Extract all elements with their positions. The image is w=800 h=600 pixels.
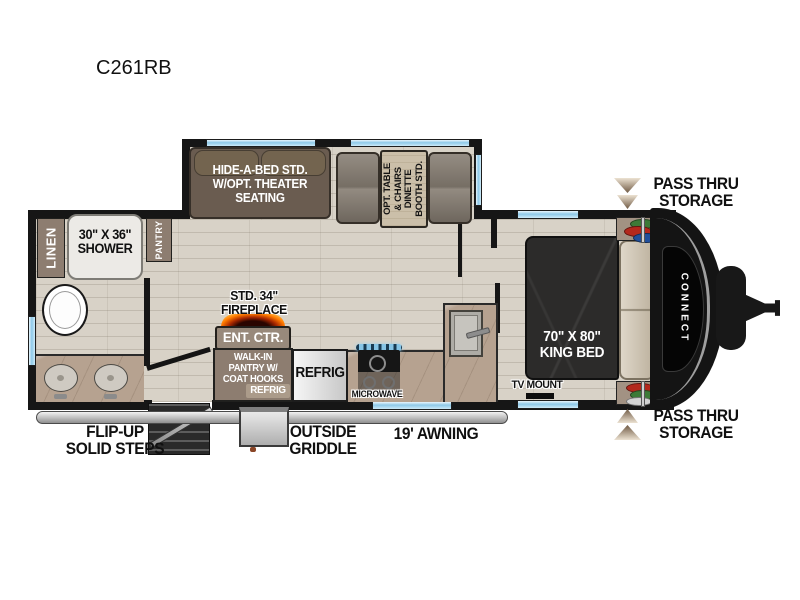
living-partition-stub — [458, 215, 462, 277]
tv-mount-bar — [526, 393, 554, 399]
vanity-faucet-left-icon — [54, 394, 67, 399]
outside-griddle-label: OUTSIDE GRIDDLE — [279, 424, 367, 459]
vanity-sink-right-drain — [107, 375, 114, 381]
bathroom-partition-wall — [144, 278, 150, 366]
stove-burner-2 — [363, 376, 376, 389]
window-slideout-side — [475, 154, 482, 206]
vanity-faucet-right-icon — [104, 394, 117, 399]
pass-thru-bottom-line2: STORAGE — [647, 425, 745, 442]
walk-in-pantry-label: WALK-IN PANTRY W/ COAT HOOKS — [216, 352, 289, 385]
dinette-bench-left — [336, 152, 380, 224]
decor-pin-bottom-icon — [641, 381, 645, 407]
pass-thru-top-line2: STORAGE — [647, 193, 745, 210]
king-bed-label: 70" X 80" KING BED — [530, 330, 615, 362]
window-kitchen-bottom — [372, 401, 452, 410]
decor-disc-silver-bottom-icon — [626, 397, 652, 406]
refrig-label: REFRIG — [294, 366, 347, 381]
window-bedroom-top — [517, 210, 579, 219]
pass-thru-bottom-line1: PASS THRU — [647, 408, 745, 425]
sofa-label-line3: SEATING — [195, 192, 325, 206]
window-bedroom-bottom — [517, 400, 579, 409]
dinette-label-line4: BOOTH STD. — [415, 151, 426, 227]
shower-label: 30" X 36" SHOWER — [71, 228, 139, 257]
flip-up-steps-line1: FLIP-UP — [45, 424, 186, 441]
tv-mount-label: TV MOUNT — [508, 380, 566, 392]
toilet-seat — [49, 291, 81, 329]
pass-thru-top-arrow-icon-1 — [614, 178, 641, 193]
fireplace-label: STD. 34" FIREPLACE — [207, 289, 301, 317]
bedroom-partition-top — [491, 218, 497, 248]
pass-thru-top-line1: PASS THRU — [647, 176, 745, 193]
flip-up-steps-line2: SOLID STEPS — [45, 441, 186, 458]
sofa-label-line2: W/OPT. THEATER — [195, 178, 325, 192]
king-bed-label-line1: 70" X 80" — [530, 330, 615, 346]
decor-pin-top-icon — [641, 217, 645, 243]
propane-cover — [716, 266, 746, 350]
ent-ctr-label: ENT. CTR. — [218, 330, 288, 345]
pass-thru-bottom-label: PASS THRU STORAGE — [647, 408, 745, 443]
awning-label: 19' AWNING — [383, 426, 488, 443]
stove-burner-1 — [369, 355, 386, 372]
model-title: C261RB — [96, 57, 172, 80]
window-rear — [28, 316, 36, 366]
dinette-bench-right — [428, 152, 472, 224]
window-slideout-2 — [350, 139, 470, 147]
walk-in-refrig-label: REFRIG — [247, 385, 288, 397]
pass-thru-bottom-arrow-icon-1 — [617, 409, 638, 423]
linen-label: LINEN — [44, 227, 59, 269]
pass-thru-top-arrow-icon-2 — [617, 195, 638, 209]
sofa-label: HIDE-A-BED STD. W/OPT. THEATER SEATING — [195, 164, 325, 205]
griddle-knob-icon — [250, 447, 256, 452]
microwave-label: MICROWAVE — [348, 390, 406, 400]
walk-in-label-line2: PANTRY W/ — [216, 363, 289, 374]
rear-wall — [28, 210, 36, 410]
vanity-sink-left-drain — [57, 375, 64, 381]
window-slideout-1 — [206, 139, 316, 147]
shower-label-line1: 30" X 36" — [71, 228, 139, 242]
flip-up-steps-label: FLIP-UP SOLID STEPS — [45, 424, 186, 459]
pass-thru-top-label: PASS THRU STORAGE — [647, 176, 745, 211]
outside-griddle-line2: GRIDDLE — [279, 441, 367, 458]
sofa-label-line1: HIDE-A-BED STD. — [195, 164, 325, 178]
floorplan-canvas: C261RB LINEN 30" X 36" SHOWER PANTRY — [0, 0, 800, 600]
pass-thru-bottom-arrow-icon-2 — [614, 425, 641, 440]
stove-burner-3 — [382, 376, 395, 389]
outside-griddle-line1: OUTSIDE — [279, 424, 367, 441]
shower-label-line2: SHOWER — [71, 242, 139, 256]
connect-brand-label: CONNECT — [679, 273, 690, 343]
hitch-tongue — [744, 294, 780, 322]
walk-in-label-line1: WALK-IN — [216, 352, 289, 363]
pantry-label: PANTRY — [154, 221, 164, 260]
king-bed-label-line2: KING BED — [530, 346, 615, 362]
dinette-table-label: OPT. TABLE & CHAIRS DINETTE BOOTH STD. — [383, 151, 426, 227]
fireplace-label-line1: STD. 34" — [207, 289, 301, 303]
